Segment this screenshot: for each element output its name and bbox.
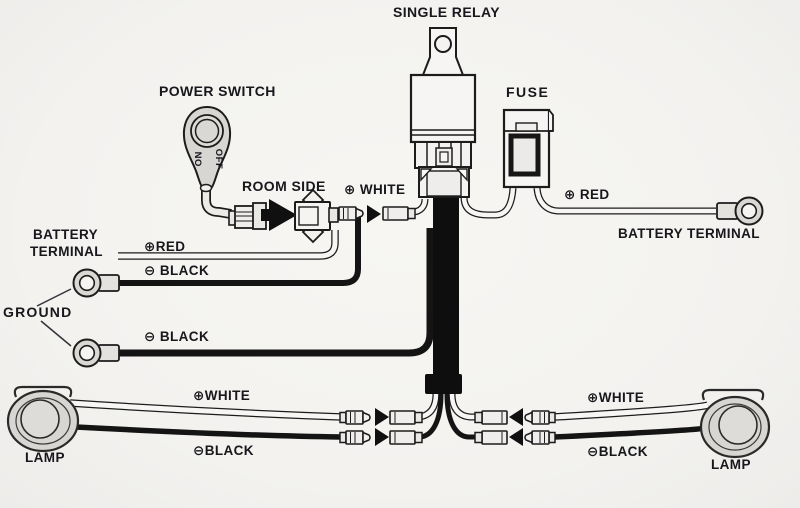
label-ground: GROUND [3,305,72,319]
label-battery-right: BATTERY TERMINAL [618,227,760,241]
relay-socket [419,167,469,197]
fuse-window [511,136,538,174]
wire-black-lamp-left [76,427,342,437]
label-white-lamp-left: ⊕WHITE [193,389,250,403]
bullet-connector-right-black [525,431,555,444]
label-battery-left-2: TERMINAL [30,245,103,259]
label-black-lamp-left: ⊖BLACK [193,444,254,458]
bullet-connector-left-white [340,411,370,424]
flow-arrow-trigger [367,205,381,223]
relay-tab-hole [435,36,451,52]
label-red-right: ⊕ RED [564,188,610,202]
label-single-relay: SINGLE RELAY [393,5,500,19]
ring-terminal-battery-right [717,198,763,225]
wire-white-lamp-left [70,403,342,417]
label-lamp-right: LAMP [711,458,751,472]
relay-pin-block [415,142,471,168]
flow-arrow-right-black [509,428,523,446]
label-black-left: ⊖ BLACK [144,264,209,278]
diagram-art [0,0,800,508]
label-battery-left-1: BATTERY [33,228,98,242]
switch-cable [206,188,231,214]
label-fuse: FUSE [506,85,549,99]
box-connector-left-white [390,411,422,424]
box-connector-trigger [383,207,415,220]
ring-terminal-ground [74,340,120,367]
label-power-switch: POWER SWITCH [159,84,276,98]
bullet-connector-right-white [525,411,555,424]
switch-connector [229,203,266,229]
label-switch-on: ON [194,150,204,168]
box-connector-right-black [475,431,507,444]
box-connector-left-black [390,431,422,444]
box-connector-right-white [475,411,507,424]
lamp-left [8,387,78,451]
label-switch-off: OFF [213,149,223,169]
bundle-end-cap [425,374,462,394]
label-black-lamp-right: ⊖BLACK [587,445,648,459]
label-white-lamp-right: ⊕WHITE [587,391,644,405]
fuse-holder [504,110,553,187]
wire-white-lamp-right [554,405,708,417]
wire-black-lamp-right [554,428,706,437]
flow-arrow-right-white [509,408,523,426]
label-lamp-left: LAMP [25,451,65,465]
ring-terminal-battery-left [74,270,120,297]
wire-white-relay-fuse [464,188,513,215]
lamp-right [701,390,769,457]
wiring-diagram: SINGLE RELAY POWER SWITCH ROOM SIDE FUSE… [0,0,800,508]
label-white-trigger: ⊕ WHITE [344,183,405,197]
relay [411,28,475,197]
flow-arrow-left-white [375,408,389,426]
label-red-left: ⊕RED [144,240,185,254]
label-room-side: ROOM SIDE [242,179,326,193]
bullet-connector-left-black [340,431,370,444]
flow-arrow-left-black [375,428,389,446]
relay-body [411,75,475,142]
label-black-ground: ⊖ BLACK [144,330,209,344]
